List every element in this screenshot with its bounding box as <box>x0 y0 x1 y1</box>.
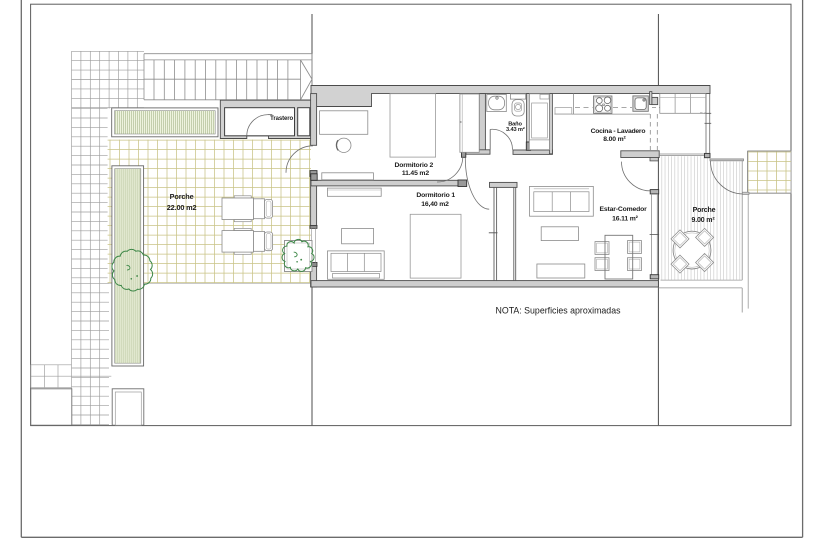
svg-text:Porche: Porche <box>170 192 194 201</box>
svg-text:22.00 m2: 22.00 m2 <box>167 203 197 212</box>
svg-text:3.43 m²: 3.43 m² <box>506 126 525 133</box>
svg-text:NOTA: Superficies aproximadas: NOTA: Superficies aproximadas <box>496 306 622 316</box>
svg-text:Estar-Comedor: Estar-Comedor <box>600 206 648 213</box>
svg-text:Dormitorio 2: Dormitorio 2 <box>394 162 433 169</box>
svg-text:11.45 m2: 11.45 m2 <box>402 170 430 177</box>
svg-text:Porche: Porche <box>693 207 716 214</box>
svg-text:8.00 m²: 8.00 m² <box>603 136 626 143</box>
svg-text:16,40 m2: 16,40 m2 <box>421 201 449 208</box>
svg-text:Trastero: Trastero <box>270 116 293 122</box>
svg-text:Dormitorio 1: Dormitorio 1 <box>416 192 455 199</box>
svg-text:16.11 m²: 16.11 m² <box>612 216 639 223</box>
svg-text:9.00 m²: 9.00 m² <box>691 217 715 224</box>
svg-text:Cocina - Lavadero: Cocina - Lavadero <box>591 128 646 135</box>
